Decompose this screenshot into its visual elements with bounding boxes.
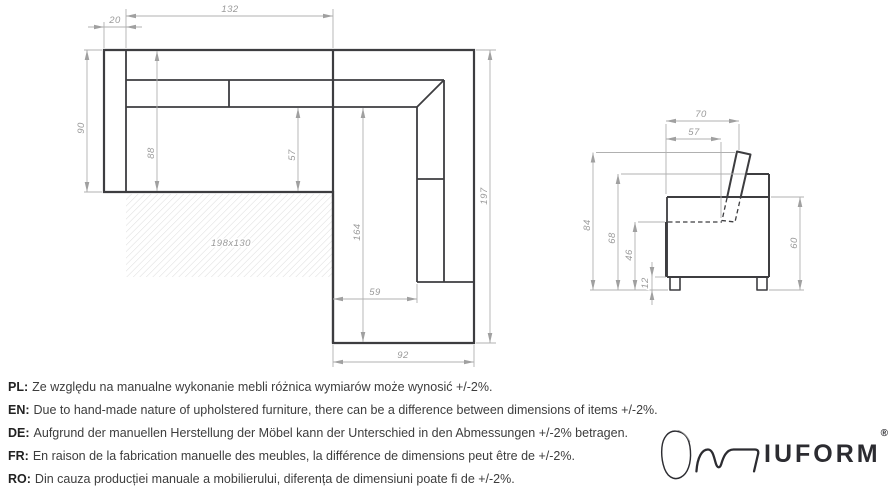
- dim-seat-depth: 57: [287, 149, 298, 161]
- dimension-sheet: 20 132 90 88 57 164 197 59 92 198x130: [0, 0, 890, 500]
- top-view: 20 132 90 88 57 164 197 59 92 198x130: [76, 4, 496, 367]
- note-pl-text: Ze względu na manualne wykonanie mebli r…: [32, 380, 492, 394]
- dim-total-height: 84: [582, 219, 593, 231]
- note-pl: PL:Ze względu na manualne wykonanie mebl…: [8, 376, 648, 399]
- note-fr-text: En raison de la fabrication manuelle des…: [33, 449, 575, 463]
- note-fr-prefix: FR:: [8, 449, 29, 463]
- logo-wordmark: IUFORM: [764, 440, 881, 469]
- registered-trademark-icon: ®: [881, 428, 888, 439]
- note-en-prefix: EN:: [8, 403, 30, 417]
- dim-total-depth: 70: [695, 109, 707, 120]
- side-view: 70 57 84 68 46 12 60: [582, 109, 804, 305]
- technical-drawing: 20 132 90 88 57 164 197 59 92 198x130: [0, 0, 890, 374]
- tolerance-notes: PL:Ze względu na manualne wykonanie mebl…: [8, 376, 648, 491]
- note-de: DE:Aufgrund der manuellen Herstellung de…: [8, 422, 648, 445]
- note-ro-prefix: RO:: [8, 472, 31, 486]
- dim-seat-height: 46: [624, 249, 635, 261]
- dim-seat-front-depth: 57: [688, 127, 700, 138]
- note-en-text: Due to hand-made nature of upholstered f…: [34, 403, 658, 417]
- sleeping-area-hatch: [126, 194, 333, 277]
- dim-chaise-width: 92: [397, 350, 409, 361]
- brand-logo: IUFORM ®: [660, 412, 888, 496]
- dim-armrest-width: 20: [108, 15, 121, 26]
- bean-logo-icon: [660, 428, 692, 482]
- note-pl-prefix: PL:: [8, 380, 28, 394]
- note-de-text: Aufgrund der manuellen Herstellung der M…: [34, 426, 628, 440]
- side-view-hidden-lines: [668, 198, 741, 222]
- note-ro: RO:Din cauza producției manuale a mobili…: [8, 468, 648, 491]
- top-view-dimensions: [84, 9, 496, 367]
- dim-leg-height: 12: [640, 277, 651, 289]
- note-de-prefix: DE:: [8, 426, 30, 440]
- dim-chaise-seat-width: 59: [369, 287, 381, 298]
- dim-inner-depth: 88: [146, 147, 157, 159]
- dim-seat-width: 132: [221, 4, 239, 15]
- side-view-outline: [666, 152, 769, 291]
- dim-back-height: 68: [607, 232, 618, 244]
- dim-body-height: 60: [789, 237, 800, 249]
- dim-depth: 90: [76, 122, 87, 134]
- sleeping-area-label: 198x130: [211, 238, 251, 249]
- dim-total-length: 197: [479, 187, 490, 205]
- note-en: EN:Due to hand-made nature of upholstere…: [8, 399, 648, 422]
- dim-chaise-inner-length: 164: [352, 223, 363, 240]
- m-squiggle-icon: [695, 446, 762, 473]
- note-ro-text: Din cauza producției manuale a mobilieru…: [35, 472, 515, 486]
- note-fr: FR:En raison de la fabrication manuelle …: [8, 445, 648, 468]
